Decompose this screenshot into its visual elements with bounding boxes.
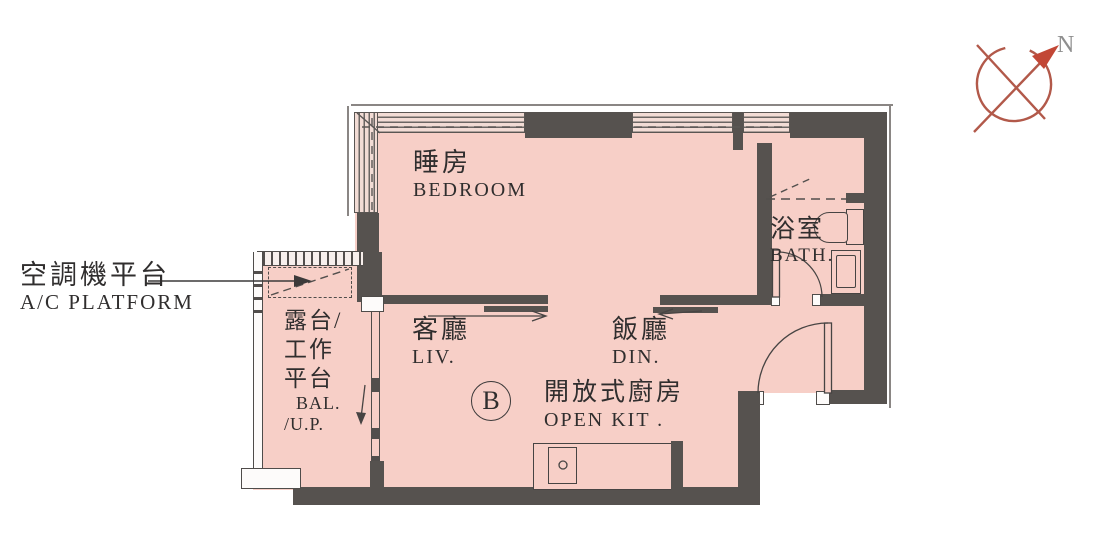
bath-dashed-diagonal [770,178,812,197]
balcony-label-en1: BAL. [284,393,342,414]
north-label: N [1057,32,1074,59]
ac-leader-arrow-head [294,275,312,287]
floor-plan: B 睡房 BEDROOM 客廳 LIV. 飯廳 DIN. 開放式廚房 OPEN … [0,0,1099,557]
entrance-door-leaf [825,323,832,393]
bedroom-label-en: BEDROOM [413,178,527,202]
unit-letter-circle: B [471,381,511,421]
north-arrow-icon [969,39,1060,132]
open-kitchen-label: 開放式廚房 OPEN KIT . [544,378,684,432]
ac-diagonal-dashed [271,269,349,295]
living-label-en: LIV. [412,345,470,369]
living-label: 客廳 LIV. [412,315,470,369]
entrance-door-swing-arc [758,323,828,393]
ac-platform-label-en: A/C PLATFORM [20,290,194,314]
dining-label-en: DIN. [612,345,670,369]
bedroom-label: 睡房 BEDROOM [413,148,527,202]
open-kitchen-label-zh: 開放式廚房 [544,378,684,408]
bath-label-zh: 浴室 [770,215,834,244]
up-arrow-head [356,412,366,425]
living-label-zh: 客廳 [412,315,470,345]
bath-label-en: BATH. [770,244,834,268]
corner-mullion-line [357,113,380,133]
dining-label: 飯廳 DIN. [612,315,670,369]
sink-drain [559,461,567,469]
ac-platform-label-zh: 空調機平台 [20,260,194,290]
balcony-label-zh2: 工作 [284,335,342,364]
unit-letter: B [482,386,499,416]
bath-label: 浴室 BATH. [770,215,834,268]
dining-label-zh: 飯廳 [612,315,670,345]
bedroom-label-zh: 睡房 [413,148,527,178]
balcony-label-en2: /U.P. [284,414,342,435]
balcony-label: 露台/ 工作 平台 BAL. /U.P. [284,306,342,435]
balcony-label-zh1: 露台/ [284,306,342,335]
ac-platform-label: 空調機平台 A/C PLATFORM [20,260,194,314]
balcony-label-zh3: 平台 [284,364,342,393]
open-kitchen-label-en: OPEN KIT . [544,408,684,432]
